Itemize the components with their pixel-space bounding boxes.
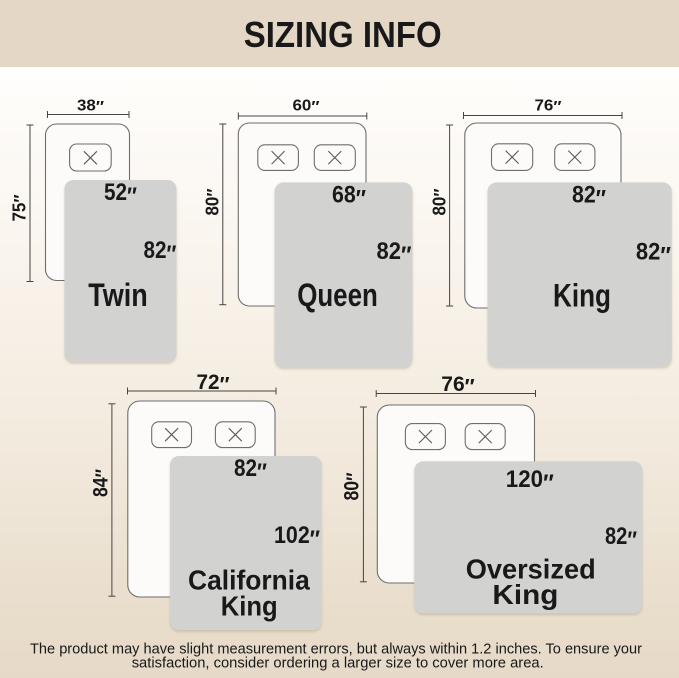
svg-text:King: King bbox=[492, 579, 558, 610]
svg-text:76″: 76″ bbox=[441, 373, 475, 399]
svg-text:satisfaction, consider orderin: satisfaction, consider ordering a larger… bbox=[132, 655, 544, 672]
svg-text:80″: 80″ bbox=[203, 188, 225, 215]
svg-text:72″: 72″ bbox=[197, 371, 230, 397]
svg-text:82″: 82″ bbox=[144, 237, 177, 268]
svg-text:82″: 82″ bbox=[572, 181, 606, 212]
svg-text:60″: 60″ bbox=[293, 98, 320, 117]
svg-text:Queen: Queen bbox=[297, 277, 378, 313]
svg-text:76″: 76″ bbox=[535, 98, 562, 117]
svg-text:80″: 80″ bbox=[429, 188, 451, 215]
svg-text:75″: 75″ bbox=[10, 194, 32, 221]
svg-text:52″: 52″ bbox=[104, 179, 137, 210]
svg-text:King: King bbox=[221, 591, 278, 622]
svg-text:38″: 38″ bbox=[77, 98, 104, 117]
svg-text:102″: 102″ bbox=[274, 522, 320, 553]
svg-text:SIZING INFO: SIZING INFO bbox=[244, 14, 442, 55]
svg-text:82″: 82″ bbox=[636, 239, 671, 270]
svg-text:Twin: Twin bbox=[88, 277, 148, 313]
svg-text:82″: 82″ bbox=[377, 238, 412, 269]
svg-text:80″: 80″ bbox=[341, 473, 367, 501]
svg-text:82″: 82″ bbox=[234, 455, 267, 486]
svg-text:68″: 68″ bbox=[332, 181, 366, 212]
svg-text:120″: 120″ bbox=[506, 466, 554, 497]
svg-text:82″: 82″ bbox=[605, 523, 637, 554]
svg-text:84″: 84″ bbox=[90, 469, 116, 497]
svg-text:King: King bbox=[553, 278, 611, 314]
